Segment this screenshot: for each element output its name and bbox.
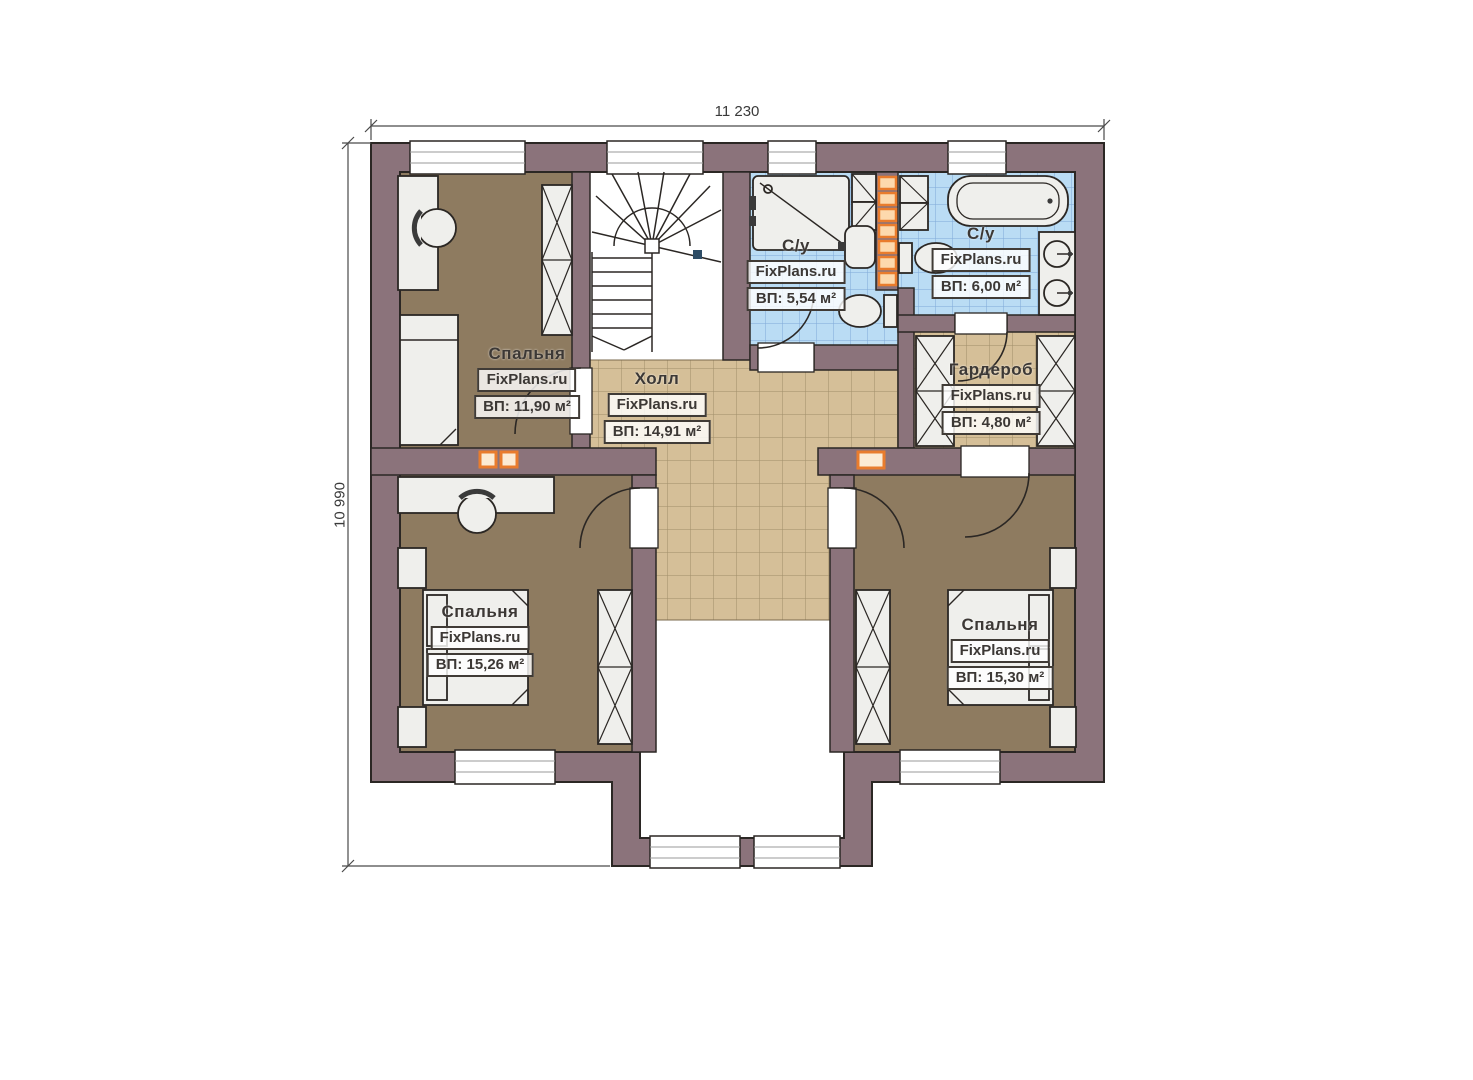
towel-radiator-strip bbox=[879, 177, 896, 285]
wall-wardrobe-top-left bbox=[898, 315, 955, 332]
room-label-wardrobe: Гардероб FixPlans.ru ВП: 4,80 м² bbox=[942, 360, 1041, 435]
dimension-extensions-top bbox=[371, 119, 1104, 140]
room-watermark: FixPlans.ru bbox=[431, 626, 530, 650]
vanity-double-sink-icon bbox=[1039, 232, 1075, 315]
room-watermark: FixPlans.ru bbox=[942, 384, 1041, 408]
window-bottom-bedroom2 bbox=[455, 750, 555, 784]
dimension-label-width: 11 230 bbox=[715, 103, 760, 120]
single-bed-icon bbox=[400, 315, 458, 445]
wardrobe-cabinet-icon bbox=[856, 590, 890, 744]
radiator-bedroom1-a bbox=[480, 452, 496, 467]
toilet-icon bbox=[839, 295, 897, 327]
bathtub-icon bbox=[948, 176, 1068, 226]
room-label-hall: Холл FixPlans.ru ВП: 14,91 м² bbox=[604, 369, 711, 444]
room-label-bath-tub: С/у FixPlans.ru ВП: 6,00 м² bbox=[932, 224, 1031, 299]
dimension-label-height: 10 990 bbox=[332, 482, 349, 528]
room-area: ВП: 14,91 м² bbox=[604, 420, 711, 444]
wall-bedroom3-left-stub bbox=[830, 475, 854, 488]
window-bay-left bbox=[650, 836, 740, 868]
room-watermark: FixPlans.ru bbox=[478, 368, 577, 392]
chair-back-icon bbox=[460, 491, 494, 498]
room-area: ВП: 15,30 м² bbox=[947, 666, 1054, 690]
window-top-stairs bbox=[607, 141, 703, 174]
stairwell-floor bbox=[590, 172, 723, 360]
nightstand-icon bbox=[1050, 548, 1076, 588]
wardrobe-cabinet-icon bbox=[598, 590, 632, 744]
room-watermark: FixPlans.ru bbox=[951, 639, 1050, 663]
room-label-bedroom-bottom-left: Спальня FixPlans.ru ВП: 15,26 м² bbox=[427, 602, 534, 677]
room-watermark: FixPlans.ru bbox=[747, 260, 846, 284]
room-label-bedroom-top-left: Спальня FixPlans.ru ВП: 11,90 м² bbox=[474, 344, 580, 419]
nightstand-icon bbox=[398, 548, 426, 588]
room-area: ВП: 6,00 м² bbox=[932, 275, 1030, 299]
room-name: С/у bbox=[782, 236, 810, 256]
wardrobe-cabinet-icon bbox=[542, 185, 572, 335]
wall-bedroom2-right bbox=[632, 548, 656, 752]
wardrobe-cabinet-icon bbox=[1037, 336, 1075, 446]
room-name: С/у bbox=[967, 224, 995, 244]
room-watermark: FixPlans.ru bbox=[932, 248, 1031, 272]
nightstand-icon bbox=[398, 707, 426, 747]
window-top-bath2 bbox=[948, 141, 1006, 174]
room-watermark: FixPlans.ru bbox=[608, 393, 707, 417]
shelf-cabinet-icon bbox=[852, 174, 876, 230]
wall-wardrobe-left bbox=[898, 288, 914, 448]
floor-plan-drawing bbox=[0, 0, 1473, 1080]
window-top-bath1 bbox=[768, 141, 816, 174]
stair-post bbox=[693, 250, 702, 259]
room-name: Холл bbox=[635, 369, 680, 389]
room-label-bedroom-bottom-right: Спальня FixPlans.ru ВП: 15,30 м² bbox=[947, 615, 1054, 690]
room-area: ВП: 15,26 м² bbox=[427, 653, 534, 677]
stair-newel bbox=[645, 239, 659, 253]
floor-plan: 11 230 10 990 Спальня FixPlans.ru ВП: 11… bbox=[0, 0, 1473, 1080]
room-name: Гардероб bbox=[949, 360, 1033, 380]
wall-bedroom2-right-stub bbox=[632, 475, 656, 488]
room-area: ВП: 11,90 м² bbox=[474, 395, 580, 419]
room-area: ВП: 4,80 м² bbox=[942, 411, 1040, 435]
room-area: ВП: 5,54 м² bbox=[747, 287, 845, 311]
radiator-hall bbox=[858, 452, 884, 468]
chair-icon bbox=[458, 495, 496, 533]
shelf-cabinet-icon bbox=[900, 176, 928, 230]
window-bottom-bedroom3 bbox=[900, 750, 1000, 784]
wall-bedroom3-top-right bbox=[1027, 448, 1075, 475]
room-name: Спальня bbox=[489, 344, 566, 364]
chair-back-icon bbox=[414, 211, 421, 245]
window-top-bedroom1 bbox=[410, 141, 525, 174]
radiator-bedroom1-b bbox=[501, 452, 517, 467]
wall-bath1-bottom-left bbox=[750, 345, 758, 370]
wall-bedroom3-left bbox=[830, 548, 854, 752]
room-name: Спальня bbox=[962, 615, 1039, 635]
wall-bedroom1-stairs-upper bbox=[572, 172, 590, 370]
nightstand-icon bbox=[1050, 707, 1076, 747]
wall-bath1-bottom-right bbox=[814, 345, 898, 370]
wall-bedroom3-top-left bbox=[818, 448, 963, 475]
room-label-bath-shower: С/у FixPlans.ru ВП: 5,54 м² bbox=[747, 236, 846, 311]
window-bay-right bbox=[754, 836, 840, 868]
chair-icon bbox=[418, 209, 456, 247]
wall-wardrobe-top-right bbox=[1007, 315, 1075, 332]
room-name: Спальня bbox=[442, 602, 519, 622]
